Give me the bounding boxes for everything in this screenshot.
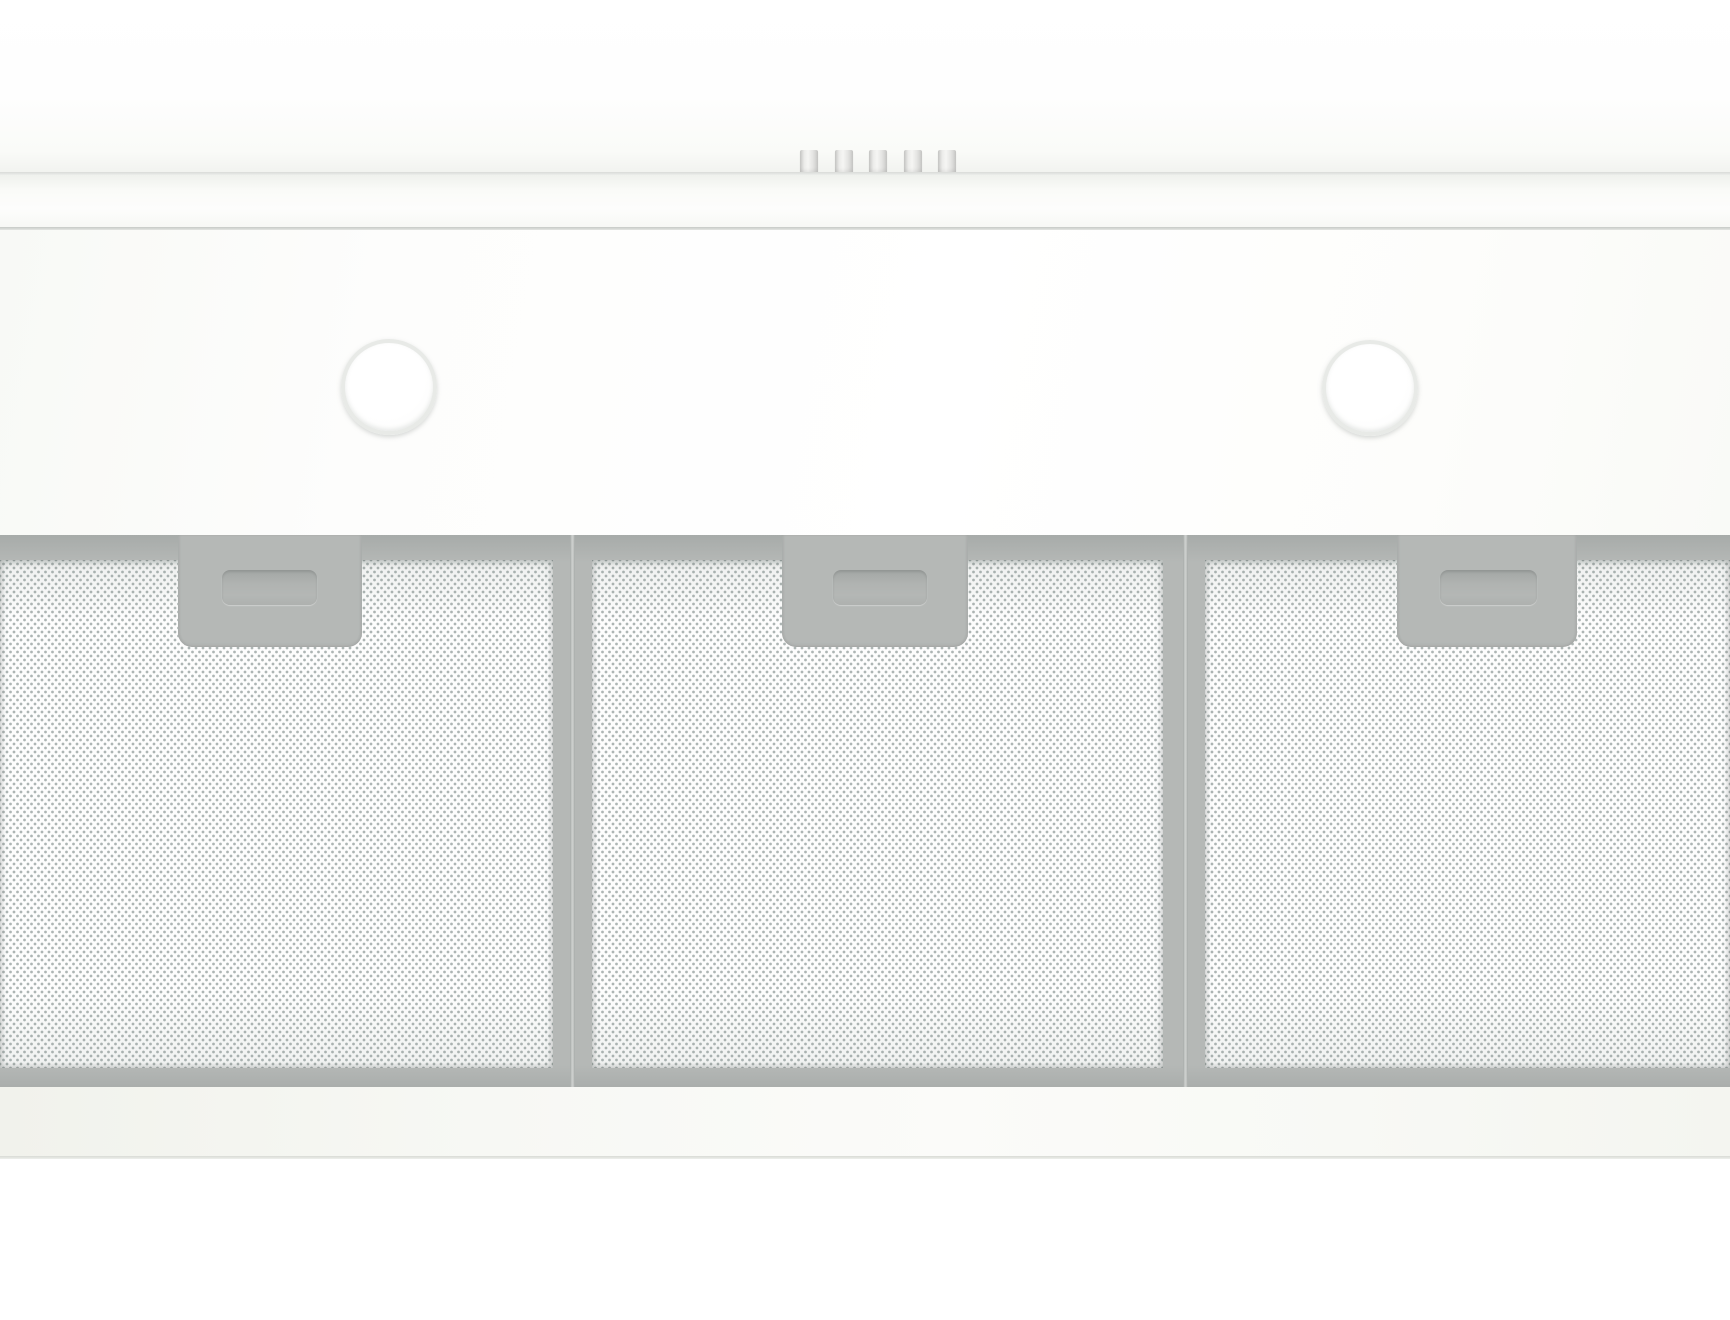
control-button-5[interactable]: [938, 150, 956, 173]
control-button-3[interactable]: [869, 150, 887, 173]
grease-filter-bank: [0, 535, 1730, 1087]
mesh-filter-right-handle[interactable]: [1440, 570, 1537, 605]
hood-top-panel: [0, 0, 1730, 172]
mesh-filter-center-handle[interactable]: [833, 570, 927, 605]
background-lower: [0, 1159, 1730, 1320]
front-trim-band: [0, 175, 1730, 227]
hood-underside-face: [0, 230, 1730, 535]
control-button-4[interactable]: [904, 150, 922, 173]
lamp-right: [1322, 340, 1418, 436]
filter-frame-seam-2: [1183, 535, 1188, 1087]
mesh-filter-left-handle[interactable]: [222, 570, 317, 605]
hood-bottom-lip: [0, 1087, 1730, 1157]
range-hood-photo: [0, 0, 1730, 1320]
control-button-2[interactable]: [835, 150, 853, 173]
control-button-1[interactable]: [800, 150, 818, 173]
lamp-left: [341, 339, 437, 435]
filter-frame-seam-1: [570, 535, 575, 1087]
